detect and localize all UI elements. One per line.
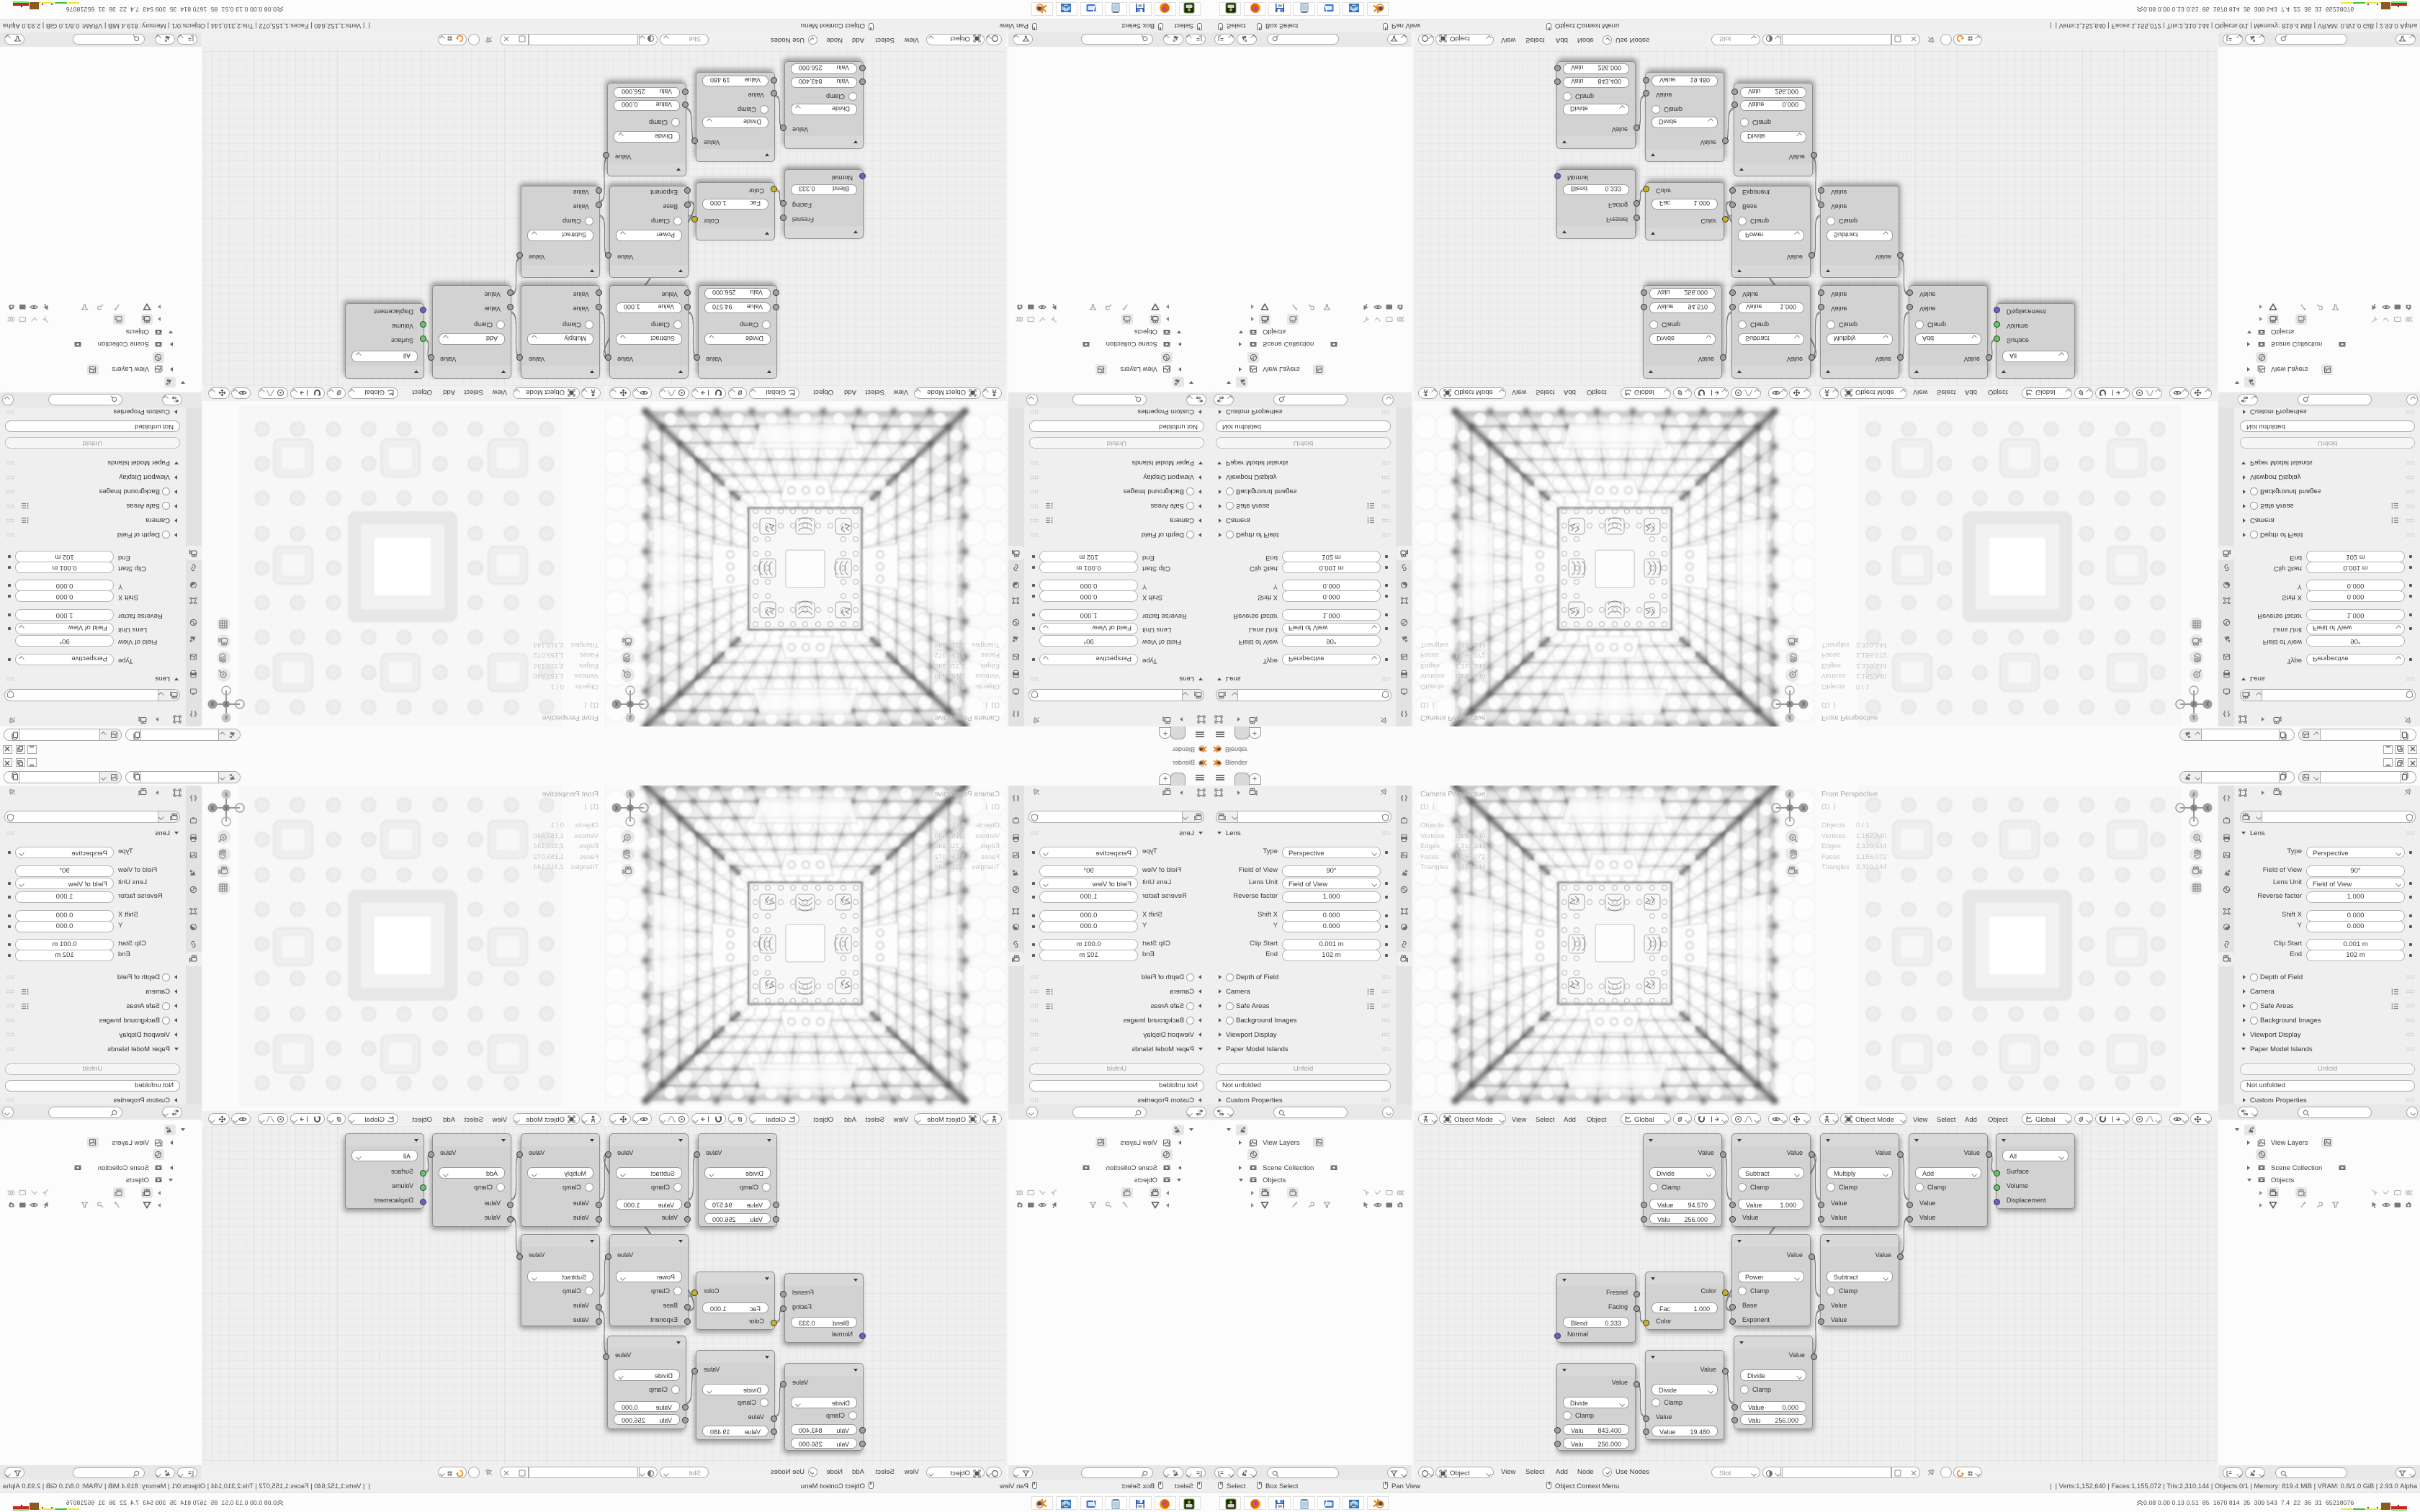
svg-text:64: 64	[1138, 4, 1142, 8]
svg-text:X: X	[1802, 806, 1806, 811]
svg-text:Z: Z	[224, 793, 228, 798]
svg-text:Z: Z	[628, 714, 632, 719]
svg-text:Z: Z	[2192, 793, 2196, 798]
svg-text:Y: Y	[628, 701, 632, 706]
svg-text:Y: Y	[1788, 701, 1792, 706]
svg-text:Y: Y	[224, 806, 228, 811]
svg-text:Y: Y	[224, 701, 228, 706]
svg-text:X: X	[2206, 806, 2210, 811]
svg-text:Z: Z	[1788, 793, 1792, 798]
svg-text:64: 64	[1278, 1505, 1282, 1509]
svg-text:X: X	[614, 806, 618, 811]
svg-text:64: 64	[1278, 4, 1282, 8]
svg-text:Y: Y	[1788, 806, 1792, 811]
svg-text:Y: Y	[2192, 701, 2196, 706]
svg-text:64: 64	[1138, 1505, 1142, 1509]
svg-text:X: X	[1802, 701, 1806, 706]
svg-text:Z: Z	[628, 793, 632, 798]
svg-text:X: X	[210, 701, 214, 706]
svg-text:Z: Z	[2192, 714, 2196, 719]
svg-text:Z: Z	[224, 714, 228, 719]
svg-text:X: X	[2206, 701, 2210, 706]
svg-text:X: X	[614, 701, 618, 706]
svg-text:Y: Y	[628, 806, 632, 811]
svg-text:Z: Z	[1788, 714, 1792, 719]
svg-text:Y: Y	[2192, 806, 2196, 811]
svg-text:X: X	[210, 806, 214, 811]
